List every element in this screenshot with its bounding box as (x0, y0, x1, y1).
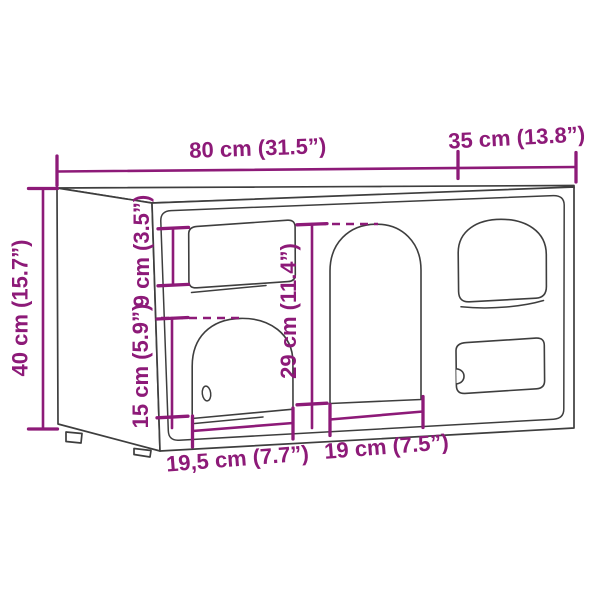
furniture-foot-front (134, 449, 151, 458)
dimension-overall-height: 40 cm (15.7”) (8, 189, 58, 430)
opening-top-right-dome (458, 219, 546, 302)
dim-label-door-height: 15 cm (5.9”) (128, 304, 153, 429)
tick-9cm-top (158, 227, 189, 228)
tick-9cm-bottom (158, 284, 189, 285)
dim-label-overall-depth: 35 cm (13.8”) (448, 121, 586, 153)
opening-center-arch (330, 224, 421, 403)
dimension-diagram-svg: 80 cm (31.5”) 35 cm (13.8”) 40 cm (15.7”… (0, 0, 600, 600)
dim-label-overall-width: 80 cm (31.5”) (189, 133, 327, 163)
dim-label-top-opening-height: 9 cm (3.5”) (129, 195, 154, 308)
dimension-top-width-depth: 80 cm (31.5”) 35 cm (13.8”) (57, 121, 586, 185)
tick-15cm-bottom (157, 416, 188, 418)
tick-29cm-bottom (297, 403, 327, 405)
opening-bottom-right-rect (456, 338, 545, 393)
dim-label-center-opening-height: 29 cm (11.4”) (276, 243, 301, 379)
furniture-foot-left (66, 432, 82, 443)
diagram-canvas: 80 cm (31.5”) 35 cm (13.8”) 40 cm (15.7”… (0, 0, 600, 600)
rect-opening-handle-notch (456, 369, 464, 384)
dim-label-overall-height: 40 cm (15.7”) (8, 240, 33, 377)
